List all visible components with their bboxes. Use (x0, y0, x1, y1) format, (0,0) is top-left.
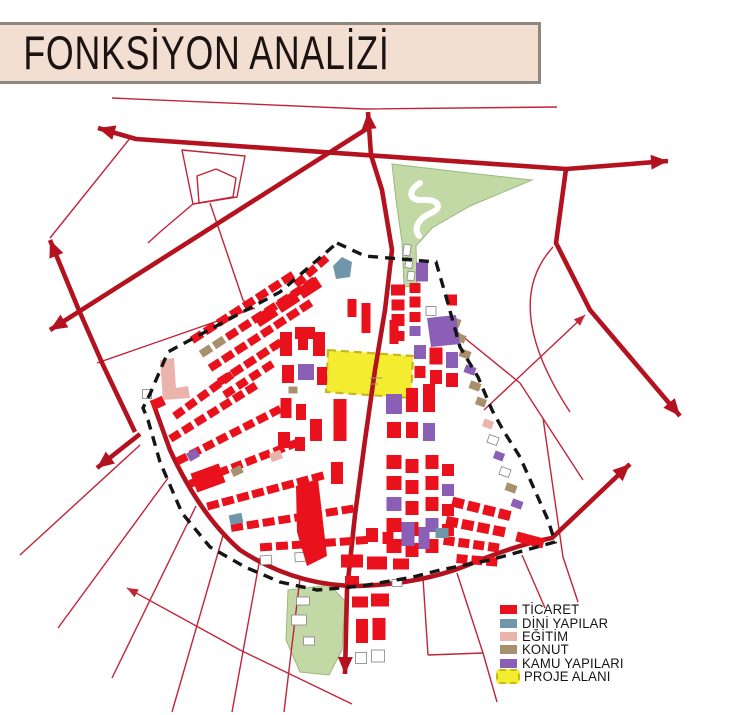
legend-item-ticaret: TİCARET (500, 603, 627, 616)
title-banner: FONKSİYON ANALİZİ (0, 22, 541, 84)
legend-label-proje-alani: PROJE ALANI (524, 669, 611, 684)
egitim-swatch-icon (500, 632, 517, 641)
legend-item-dini-yapilar: DİNİ YAPILAR (500, 616, 627, 629)
legend: TİCARET DİNİ YAPILAR EĞİTİM KONUT KAMU Y… (500, 603, 627, 683)
legend-item-kamu-yapilari: KAMU YAPILARI (500, 657, 627, 670)
legend-item-konut: KONUT (500, 643, 627, 656)
proje-alani-swatch-icon (496, 669, 520, 684)
dini-yapilar-swatch-icon (500, 619, 517, 628)
ticaret-swatch-icon (500, 605, 517, 614)
page-title: FONKSİYON ANALİZİ (0, 25, 409, 81)
layer-project (326, 350, 413, 398)
layer-greens (286, 164, 532, 675)
legend-item-egitim: EĞİTİM (500, 630, 627, 643)
legend-item-proje-alani: PROJE ALANI (500, 670, 627, 683)
kamu-yapilari-swatch-icon (500, 659, 517, 668)
screenshot-root: FONKSİYON ANALİZİ TİCARET DİNİ YAPILAR E… (0, 0, 735, 715)
konut-swatch-icon (500, 645, 517, 654)
